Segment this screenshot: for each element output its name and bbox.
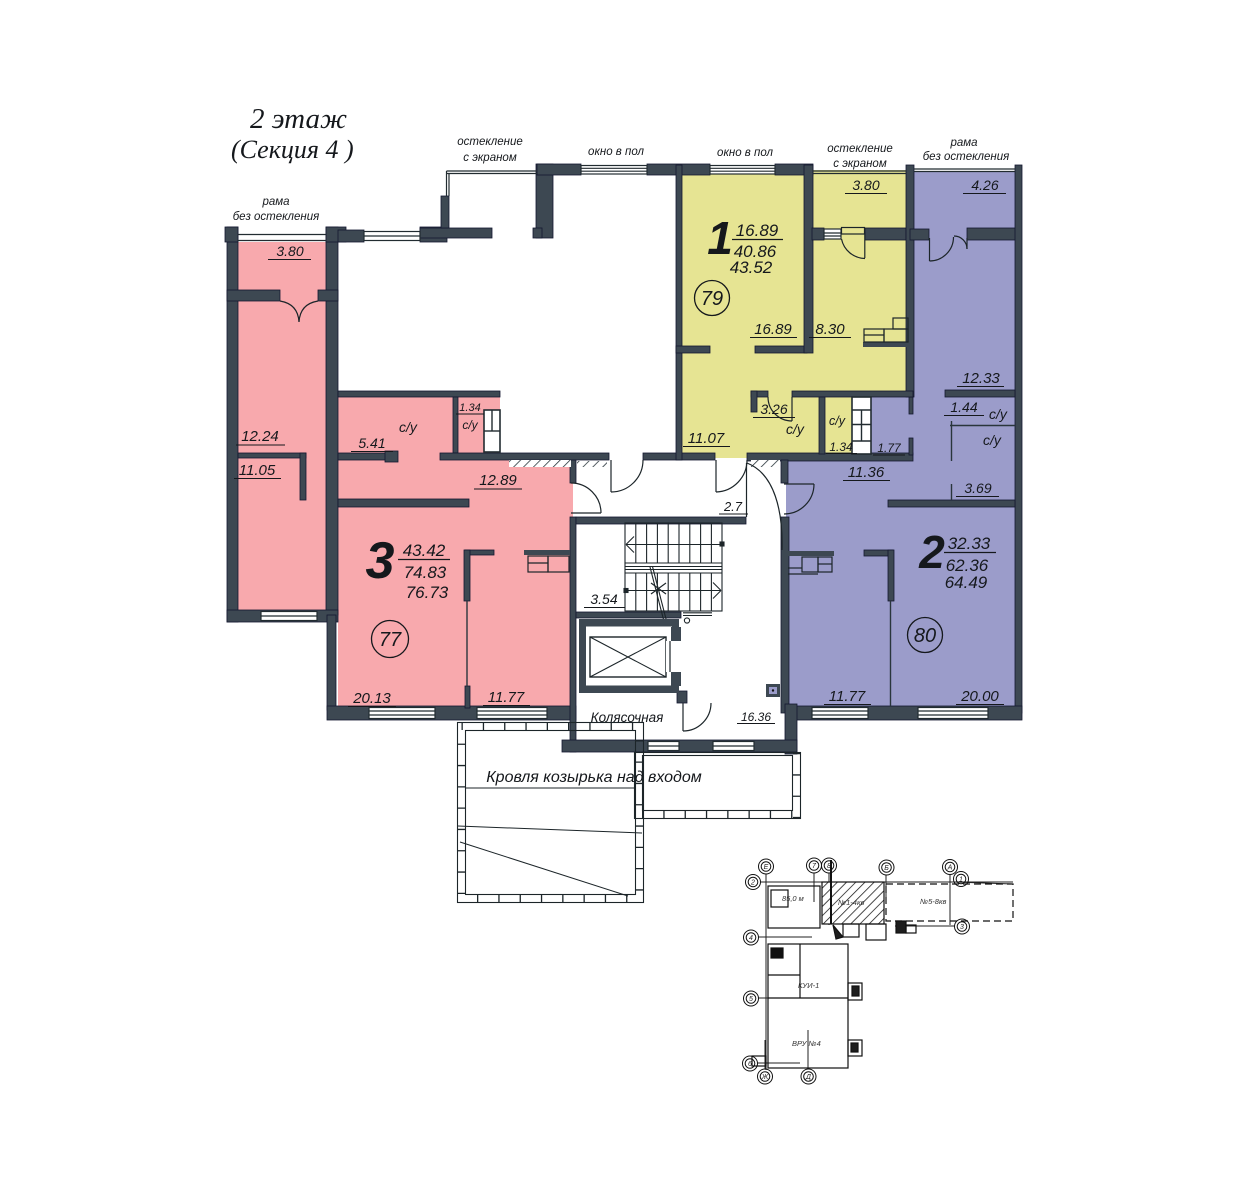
svg-text:с экраном: с экраном [463, 152, 517, 164]
svg-text:3: 3 [960, 924, 964, 931]
svg-text:1: 1 [959, 877, 963, 884]
svg-text:Колясочная: Колясочная [591, 710, 664, 725]
svg-text:12.33: 12.33 [962, 370, 1000, 387]
svg-text:8: 8 [827, 863, 831, 870]
svg-text:Д: Д [805, 1074, 811, 1081]
svg-text:рама: рама [261, 196, 289, 208]
svg-text:(Секция 4 ): (Секция 4 ) [231, 135, 354, 164]
svg-text:с/у: с/у [399, 419, 418, 435]
svg-text:76.73: 76.73 [406, 583, 449, 602]
svg-text:3: 3 [366, 532, 395, 590]
svg-text:3.26: 3.26 [760, 401, 787, 417]
svg-text:2 этаж: 2 этаж [250, 103, 347, 135]
svg-text:85,0 м: 85,0 м [782, 894, 804, 903]
svg-text:№5-8кв: №5-8кв [920, 897, 947, 906]
svg-text:Кровля козырька над входом: Кровля козырька над входом [486, 769, 702, 786]
svg-text:12.24: 12.24 [241, 428, 279, 445]
svg-text:2: 2 [918, 526, 945, 578]
svg-text:8.30: 8.30 [815, 321, 845, 338]
svg-text:А: А [947, 865, 953, 872]
svg-text:окно в пол: окно в пол [588, 146, 644, 158]
svg-text:43.52: 43.52 [730, 258, 773, 277]
svg-text:1: 1 [707, 212, 733, 264]
svg-text:окно в пол: окно в пол [717, 147, 773, 159]
svg-text:3.54: 3.54 [590, 591, 617, 607]
svg-text:20.00: 20.00 [960, 688, 999, 705]
svg-text:ВРУ №4: ВРУ №4 [792, 1039, 821, 1048]
svg-text:80: 80 [914, 625, 936, 647]
svg-text:рама: рама [949, 137, 977, 149]
svg-text:Ж: Ж [761, 1074, 769, 1081]
svg-text:КУИ-1: КУИ-1 [798, 981, 819, 990]
svg-text:11.36: 11.36 [848, 464, 885, 481]
svg-text:11.77: 11.77 [829, 688, 866, 705]
svg-text:4.26: 4.26 [971, 177, 998, 193]
svg-text:с/у: с/у [983, 432, 1002, 448]
svg-text:Б: Б [884, 865, 889, 872]
svg-text:3.80: 3.80 [276, 243, 303, 259]
svg-text:32.33: 32.33 [948, 534, 991, 553]
svg-text:5: 5 [749, 996, 753, 1003]
svg-text:1.77: 1.77 [877, 441, 902, 455]
svg-text:остекление: остекление [827, 143, 893, 155]
svg-text:12.89: 12.89 [479, 472, 517, 489]
svg-text:с экраном: с экраном [833, 158, 887, 170]
svg-text:16.36: 16.36 [741, 710, 771, 724]
svg-text:4: 4 [749, 935, 753, 942]
svg-text:3.80: 3.80 [852, 177, 879, 193]
svg-text:20.13: 20.13 [352, 690, 391, 707]
svg-text:77: 77 [379, 629, 402, 651]
svg-text:с/у: с/у [829, 414, 846, 428]
svg-text:1.34: 1.34 [829, 440, 853, 454]
svg-text:2: 2 [750, 880, 755, 887]
svg-text:11.07: 11.07 [688, 430, 725, 447]
svg-text:16.89: 16.89 [736, 221, 779, 240]
svg-text:без остекления: без остекления [923, 151, 1010, 163]
svg-text:11.05: 11.05 [239, 462, 276, 479]
svg-text:6: 6 [748, 1061, 752, 1068]
svg-text:5.41: 5.41 [358, 435, 385, 451]
svg-text:без остекления: без остекления [233, 211, 320, 223]
svg-text:3.69: 3.69 [964, 480, 991, 496]
svg-text:1.34: 1.34 [459, 402, 480, 414]
svg-text:с/у: с/у [462, 418, 478, 432]
svg-text:1.44: 1.44 [950, 399, 977, 415]
svg-text:остекление: остекление [457, 136, 523, 148]
svg-text:№1-4кв: №1-4кв [838, 898, 865, 907]
svg-text:11.77: 11.77 [488, 689, 525, 706]
svg-text:с/у: с/у [989, 406, 1008, 422]
svg-text:16.89: 16.89 [754, 321, 792, 338]
svg-text:79: 79 [701, 288, 723, 310]
svg-text:43.42: 43.42 [403, 541, 446, 560]
svg-text:2.7: 2.7 [723, 499, 743, 514]
svg-text:Е: Е [764, 864, 769, 871]
svg-text:74.83: 74.83 [404, 563, 447, 582]
svg-text:64.49: 64.49 [945, 573, 988, 592]
svg-text:с/у: с/у [786, 421, 805, 437]
